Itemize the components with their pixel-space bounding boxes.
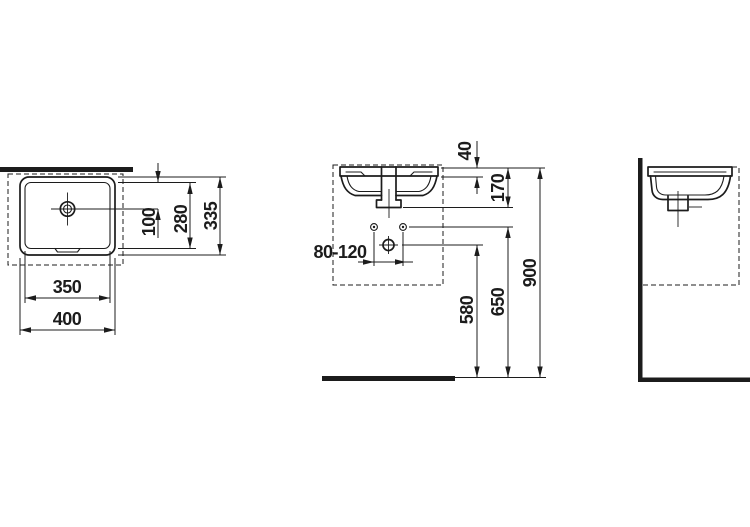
- dim-label-400: 400: [53, 309, 82, 329]
- supply-connection-left: [371, 224, 378, 231]
- counter-dashed-side: [643, 167, 739, 285]
- dim-80-120: 80-120: [313, 242, 413, 265]
- dim-170: 170: [488, 168, 511, 208]
- dim-900: 900: [520, 168, 543, 378]
- dim-label-650: 650: [488, 287, 508, 316]
- floor-bar-side: [638, 378, 750, 383]
- washbasin-dimension-drawing: 100 280 335 350 400: [0, 0, 750, 527]
- dim-350: 350: [25, 277, 110, 301]
- basin-side-profile: [648, 167, 732, 227]
- dim-label-350: 350: [53, 277, 82, 297]
- front-view: 80-120 40 170 580 650: [313, 141, 546, 381]
- technical-drawing-page: 100 280 335 350 400: [0, 0, 750, 527]
- wall-bar: [0, 167, 133, 172]
- dim-580: 580: [457, 245, 480, 378]
- supply-connection-right: [400, 224, 407, 231]
- dim-400: 400: [20, 309, 115, 333]
- dim-label-900: 900: [520, 258, 540, 287]
- dim-100: 100: [139, 163, 161, 238]
- dim-label-80-120: 80-120: [313, 242, 367, 262]
- floor-bar: [322, 376, 455, 381]
- dim-label-100: 100: [139, 207, 159, 236]
- dim-label-335: 335: [201, 201, 221, 230]
- dim-335: 335: [201, 177, 223, 255]
- dim-650: 650: [488, 227, 511, 378]
- basin-front-profile: [340, 167, 438, 218]
- dim-label-580: 580: [457, 295, 477, 324]
- dim-label-40: 40: [455, 141, 475, 161]
- top-view: 100 280 335 350 400: [0, 163, 226, 335]
- waste-outlet-symbol: [379, 236, 398, 254]
- side-view: [638, 158, 750, 382]
- dim-280: 280: [171, 183, 193, 249]
- wall-bar-side: [638, 158, 643, 381]
- dim-label-170: 170: [488, 173, 508, 202]
- dim-label-280: 280: [171, 204, 191, 233]
